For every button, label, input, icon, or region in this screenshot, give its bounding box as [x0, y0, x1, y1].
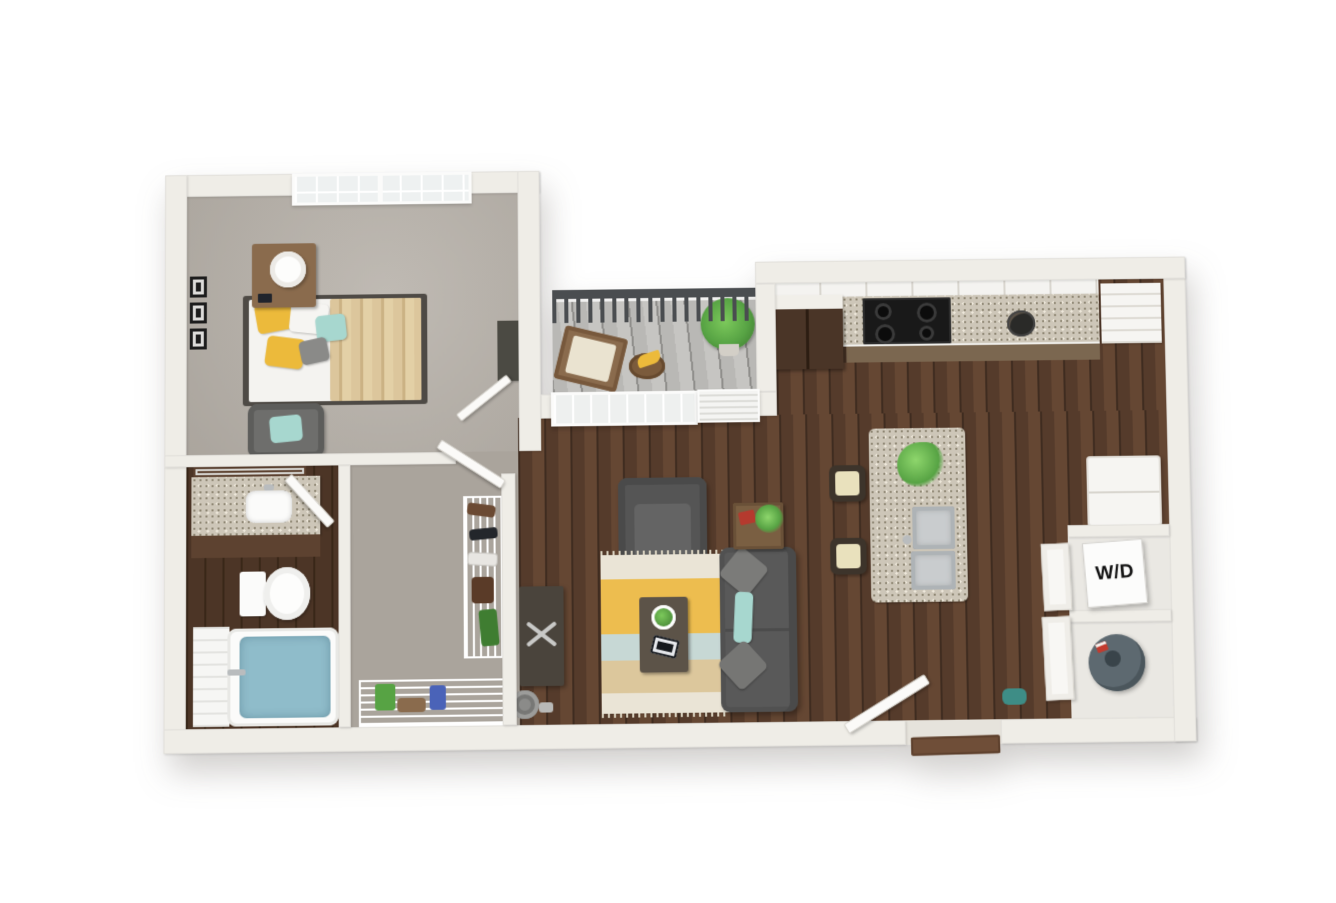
balcony-right-wall — [755, 283, 776, 391]
railing-balusters — [552, 297, 758, 324]
storage-bin — [375, 684, 395, 711]
bar-stool — [830, 538, 867, 575]
living-room-window — [551, 391, 698, 427]
laundry-closet-door — [1041, 543, 1073, 611]
bedroom-window — [292, 172, 472, 206]
picture-frame — [190, 302, 207, 323]
laundry-niche-wall — [1067, 524, 1169, 537]
door-mat — [911, 735, 1001, 756]
bathroom-closet-wall — [338, 465, 351, 727]
burner — [919, 326, 934, 341]
refrigerator — [1086, 455, 1162, 527]
smartphone — [258, 294, 272, 303]
pantry-cabinet-top — [772, 295, 842, 310]
laundry-closet-door — [1042, 616, 1075, 701]
vanity-sink — [246, 490, 292, 523]
corner-open-shelves — [1100, 283, 1161, 344]
dresser — [497, 321, 518, 381]
burner — [875, 324, 895, 344]
picture-frame — [190, 276, 207, 297]
bedroom-right-wall — [517, 171, 541, 451]
louvered-balcony-door — [697, 389, 760, 423]
caster-wheel — [539, 702, 553, 712]
side-table-plant — [755, 504, 784, 533]
island-sink — [911, 551, 956, 590]
storage-basket — [397, 698, 425, 713]
storage-bin — [430, 685, 446, 710]
floorplan-scene: W/D — [0, 0, 1336, 903]
washer-dryer-label: W/D — [1095, 560, 1136, 585]
duffel-bag — [1002, 688, 1027, 705]
closet-right-wall — [501, 473, 517, 725]
coffee-table-plant — [651, 605, 675, 630]
toilet-bowl — [264, 567, 310, 620]
bathtub-water — [239, 636, 330, 719]
bar-stool — [829, 465, 866, 502]
pantry-cabinet — [773, 309, 844, 370]
island-faucet — [903, 535, 912, 544]
burner — [875, 303, 892, 320]
teal-lumbar-pillow — [733, 592, 753, 644]
plant-pot — [719, 344, 739, 356]
tub-faucet — [227, 669, 245, 675]
tub-tile-surround — [193, 627, 230, 727]
hanging-garment — [478, 609, 499, 647]
bed-blanket — [330, 298, 421, 401]
water-heater-cap — [1104, 650, 1121, 666]
burner — [917, 302, 937, 322]
teal-chair-pillow — [269, 414, 303, 443]
laundry-niche-wall — [1069, 609, 1171, 622]
boot — [472, 577, 494, 604]
exterior-wall-bottom — [1001, 717, 1197, 744]
picture-frame — [190, 328, 207, 349]
vanity-faucet — [264, 484, 274, 490]
island-sink — [912, 506, 955, 549]
vanity-cabinet — [191, 534, 320, 558]
toilet-tank — [240, 571, 266, 616]
shoe — [467, 552, 498, 567]
washer-dryer-unit: W/D — [1082, 538, 1148, 608]
